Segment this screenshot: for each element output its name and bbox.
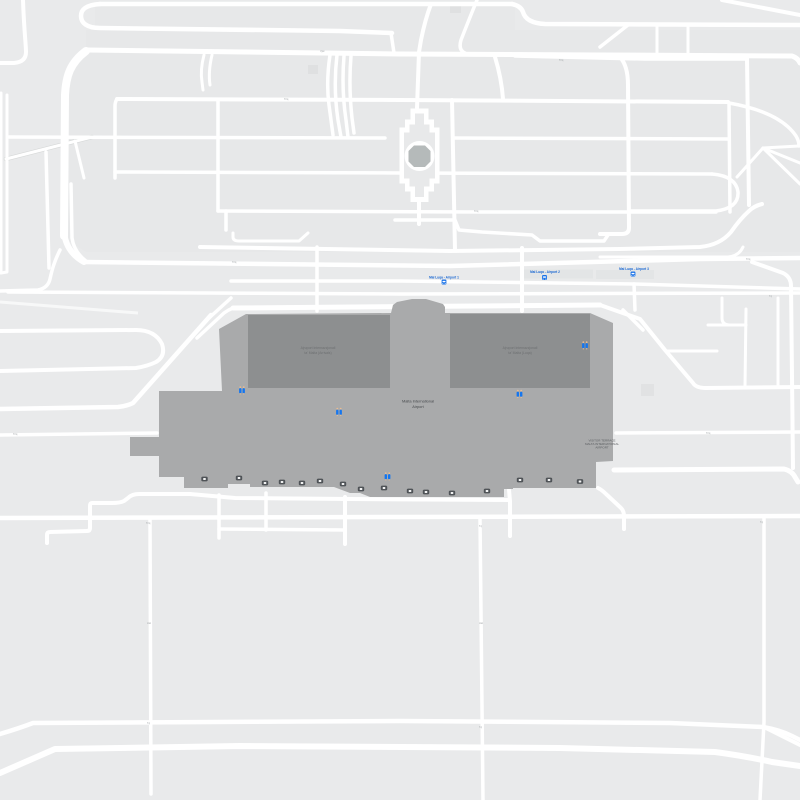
svg-text:Mal Luqa - Airport 2: Mal Luqa - Airport 2 [530,270,560,274]
svg-text:Triq: Triq [284,97,289,101]
svg-text:ta' Malta (Arrivals): ta' Malta (Arrivals) [304,351,331,355]
svg-text:Triq: Triq [706,431,711,435]
svg-text:Ajruport Internazzjonali: Ajruport Internazzjonali [503,346,538,350]
svg-text:Triq: Triq [474,209,479,213]
svg-text:Airport: Airport [412,404,424,409]
svg-text:Hal: Hal [147,621,151,625]
svg-text:Ajruport Internazzjonali: Ajruport Internazzjonali [301,346,336,350]
svg-text:Triq: Triq [13,432,18,436]
svg-text:Malta International: Malta International [402,399,434,404]
svg-text:Triq: Triq [232,260,237,264]
svg-text:Mal Luqa - Airport 3: Mal Luqa - Airport 3 [619,267,649,271]
svg-text:Triq: Triq [746,257,751,261]
svg-text:Vjal: Vjal [320,49,325,53]
svg-text:ta' Malta (Luqa): ta' Malta (Luqa) [508,351,531,355]
svg-text:Triq: Triq [559,58,564,62]
svg-text:Mal Luqa - Airport 1: Mal Luqa - Airport 1 [429,276,459,280]
svg-text:AIRPORT: AIRPORT [595,446,608,450]
svg-text:Triq: Triq [146,521,151,525]
svg-text:Hal: Hal [479,621,483,625]
